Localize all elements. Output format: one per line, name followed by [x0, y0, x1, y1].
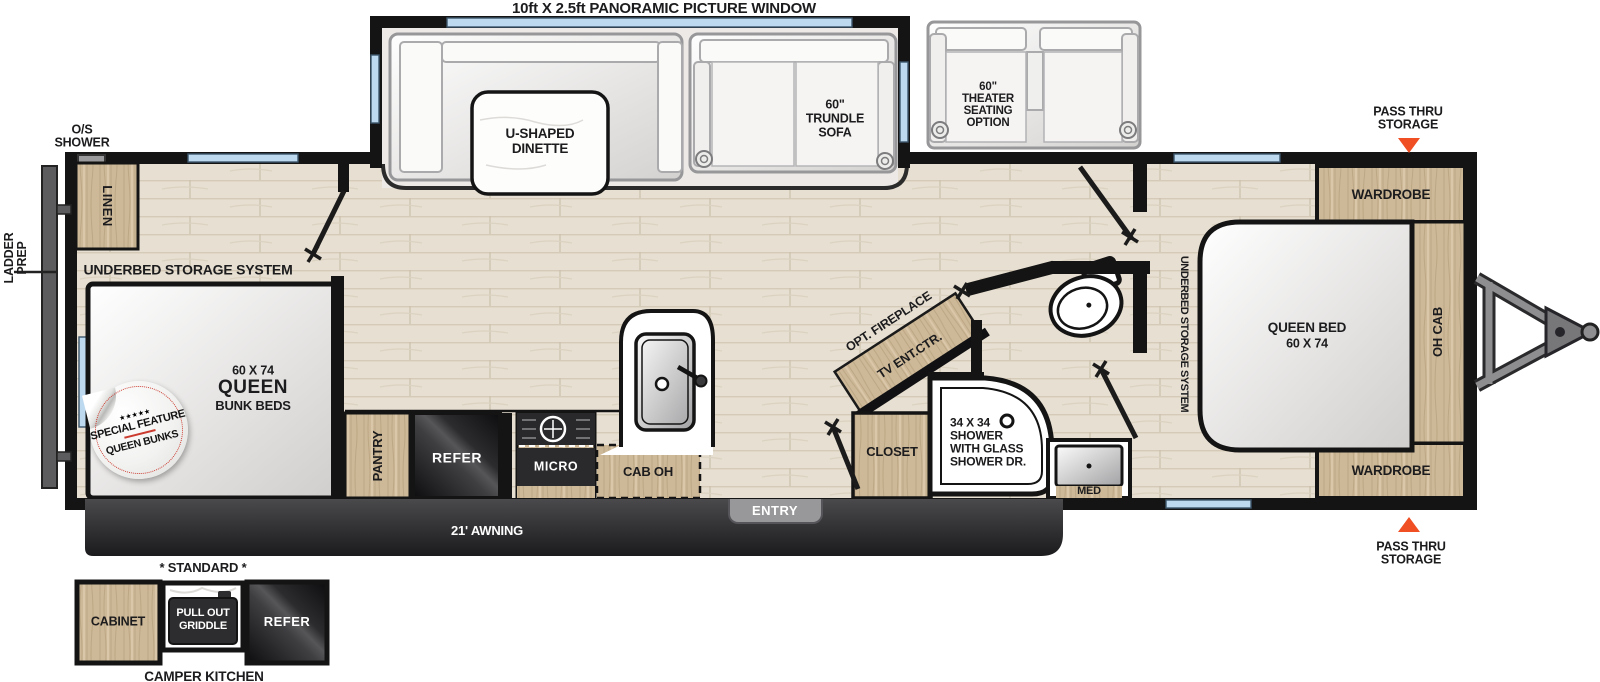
camper-cabinet-label: CABINET: [91, 615, 145, 628]
micro-label: MICRO: [534, 460, 578, 473]
oh-cab-label: OH CAB: [1431, 307, 1445, 357]
awning-label: 21' AWNING: [451, 524, 523, 538]
u-shaped-dinette: [390, 34, 682, 194]
panoramic-window-icon: [447, 18, 852, 27]
cupholder-icon: [877, 153, 893, 169]
cab-oh-label: CAB OH: [623, 465, 673, 479]
sofa-label: SOFA: [818, 126, 851, 139]
hitch-icon: [1477, 278, 1598, 386]
bath-wall: [1133, 261, 1147, 353]
theater-seating-option: [928, 22, 1140, 148]
queen-bed-label: QUEEN BED: [1268, 321, 1346, 335]
window-icon: [188, 154, 298, 162]
shower-label: SHOWER DR.: [950, 456, 1026, 469]
arrow-up-icon: [1398, 517, 1420, 532]
linen-label: LINEN: [100, 185, 114, 227]
theater-label: 60": [979, 81, 997, 93]
dinette-label: DINETTE: [512, 142, 568, 156]
cupholder-icon: [932, 122, 948, 138]
sofa-label: 60": [825, 98, 844, 111]
standard-label: * STANDARD *: [160, 561, 247, 575]
underbed-storage-label-left: UNDERBED STORAGE SYSTEM: [83, 263, 292, 278]
griddle-label: PULL OUT: [176, 608, 229, 620]
window-icon: [1166, 500, 1251, 508]
page-title: 10ft X 2.5ft PANORAMIC PICTURE WINDOW: [512, 1, 816, 17]
rv-floorplan: 10ft X 2.5ft PANORAMIC PICTURE WINDOW O/…: [0, 0, 1600, 682]
shower-label: SHOWER: [950, 430, 1003, 443]
drain-icon: [656, 378, 668, 390]
queen-bed-label: 60 X 74: [1286, 337, 1328, 350]
dinette-label: U-SHAPED: [506, 127, 575, 141]
griddle-label: GRIDDLE: [179, 621, 227, 633]
bunk-type-label: BUNK BEDS: [215, 399, 290, 413]
bunk-size-label: 60 X 74: [232, 364, 274, 377]
showerhead-icon: [1001, 415, 1013, 427]
pantry-label: PANTRY: [371, 431, 385, 482]
arrow-down-icon: [1398, 138, 1420, 153]
sofa-label: TRUNDLE: [806, 112, 864, 125]
wardrobe-top-label: WARDROBE: [1352, 188, 1431, 202]
refer-label: REFER: [432, 451, 482, 466]
entry-label: ENTRY: [752, 504, 798, 518]
pass-thru-bottom-label: STORAGE: [1381, 553, 1441, 566]
med-label: MED: [1077, 486, 1101, 498]
camper-refer-label: REFER: [264, 615, 311, 629]
pass-thru-top-label: STORAGE: [1378, 118, 1438, 131]
window-icon: [900, 62, 908, 142]
closet-label: CLOSET: [866, 445, 918, 459]
camper-kitchen-caption: CAMPER KITCHEN: [144, 670, 263, 682]
underbed-storage-label-right: UNDERBED STORAGE SYSTEM: [1177, 256, 1189, 412]
theater-label: THEATER: [962, 93, 1014, 105]
bunk-door-stub: [338, 164, 349, 192]
os-shower-label: SHOWER: [54, 136, 109, 149]
bunk-wall: [331, 276, 344, 498]
ladder-prep-label: LADDER PREP: [3, 233, 29, 284]
trundle-sofa: [690, 34, 896, 172]
bath-wall: [1133, 164, 1147, 212]
awning: [85, 499, 1063, 556]
theater-label: OPTION: [967, 117, 1010, 129]
cupholder-icon: [696, 151, 712, 167]
wardrobe-bottom-label: WARDROBE: [1352, 464, 1431, 478]
floorplan-drawing: [0, 0, 1600, 682]
shower-label: WITH GLASS: [950, 443, 1023, 456]
theater-label: SEATING: [964, 105, 1013, 117]
cupholder-icon: [1120, 122, 1136, 138]
shower-label: 34 X 34: [950, 417, 990, 430]
bunk-name-label: QUEEN: [218, 378, 288, 398]
rear-bumper: [14, 166, 71, 488]
window-icon: [371, 55, 379, 123]
window-icon: [1174, 154, 1280, 162]
